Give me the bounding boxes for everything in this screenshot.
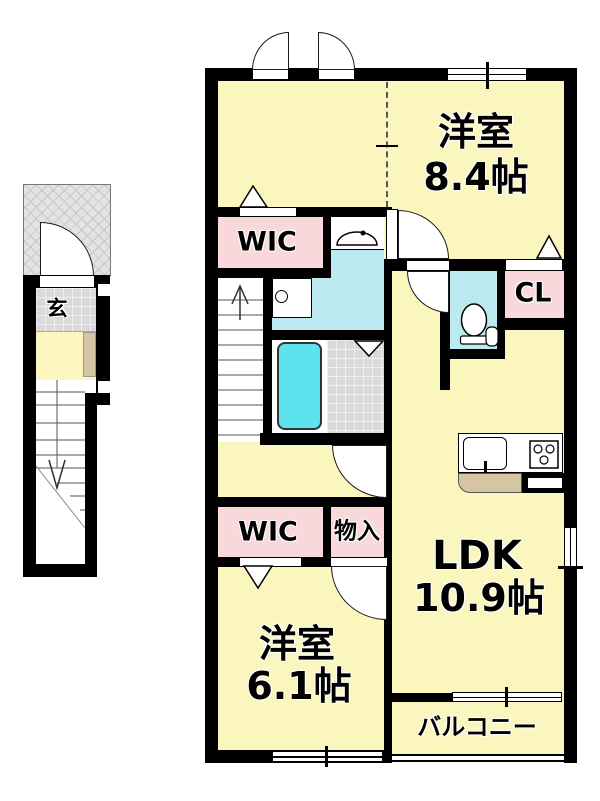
ldk-label: LDK	[432, 536, 522, 576]
entry-double-door-right	[318, 69, 355, 80]
storage-label: 物入	[334, 521, 380, 544]
wic-upper-door-marker	[238, 184, 269, 209]
wic-upper-label: WIC	[237, 229, 297, 256]
wall	[205, 497, 392, 507]
kitchen-hatch	[522, 473, 564, 493]
wall	[564, 68, 577, 763]
kitchen-hatch-slot	[528, 478, 562, 488]
wall	[497, 318, 564, 330]
toilet-door-leaf	[406, 260, 450, 271]
wic-upper-doorway	[240, 208, 296, 216]
western-room-2-label: 洋室	[259, 625, 335, 663]
western-room-1-size: 8.4帖	[423, 158, 528, 196]
wall	[85, 393, 97, 567]
entry-double-door-arc-left	[252, 32, 289, 70]
kitchen-lower-counter	[458, 473, 522, 493]
balcony-label: バルコニー	[417, 715, 537, 739]
wash-basin-icon	[331, 217, 384, 250]
stove-icon	[529, 440, 559, 469]
western-room-2-size: 6.1帖	[246, 667, 351, 705]
wall	[205, 268, 331, 278]
toilet-icon	[458, 303, 503, 351]
stairs-up-treads	[218, 278, 263, 442]
western-room-2-doorway	[331, 558, 387, 566]
wall-vent	[98, 284, 110, 296]
entrance-label: 玄	[47, 299, 68, 320]
wic-lower-label: WIC	[238, 519, 298, 546]
window-tick	[505, 687, 508, 707]
wall	[260, 433, 392, 445]
closet-door-marker	[535, 234, 563, 260]
washing-machine-drain-icon	[275, 290, 288, 303]
window-tick	[486, 62, 489, 89]
window-tick	[325, 746, 328, 767]
stairs-down-treads	[36, 380, 85, 564]
wall-vent	[98, 381, 110, 393]
entry-double-door-left	[252, 69, 289, 80]
entry-double-door-arc-right	[318, 32, 355, 70]
wall	[23, 275, 36, 577]
entry-doorway	[40, 276, 94, 287]
bathtub	[277, 342, 322, 430]
wall	[384, 259, 392, 757]
wall	[392, 693, 452, 702]
wall	[263, 278, 272, 442]
bathroom-door-marker	[353, 339, 385, 358]
balcony-rail	[392, 754, 564, 762]
wic-lower-door-marker	[242, 564, 274, 590]
western-room-1-door-leaf	[386, 209, 398, 260]
wall	[323, 217, 331, 268]
wall	[205, 68, 218, 763]
shoe-cabinet	[83, 332, 96, 377]
wall	[23, 564, 97, 577]
window	[564, 527, 577, 570]
ldk-size: 10.9帖	[413, 579, 545, 617]
closet-label: CL	[514, 280, 551, 307]
divider-tick	[376, 145, 398, 147]
closet-doorway	[506, 260, 562, 270]
wall	[205, 207, 392, 217]
floor-plan: 玄	[0, 0, 600, 801]
western-room-1-label: 洋室	[438, 113, 514, 151]
window-tick	[558, 566, 583, 569]
